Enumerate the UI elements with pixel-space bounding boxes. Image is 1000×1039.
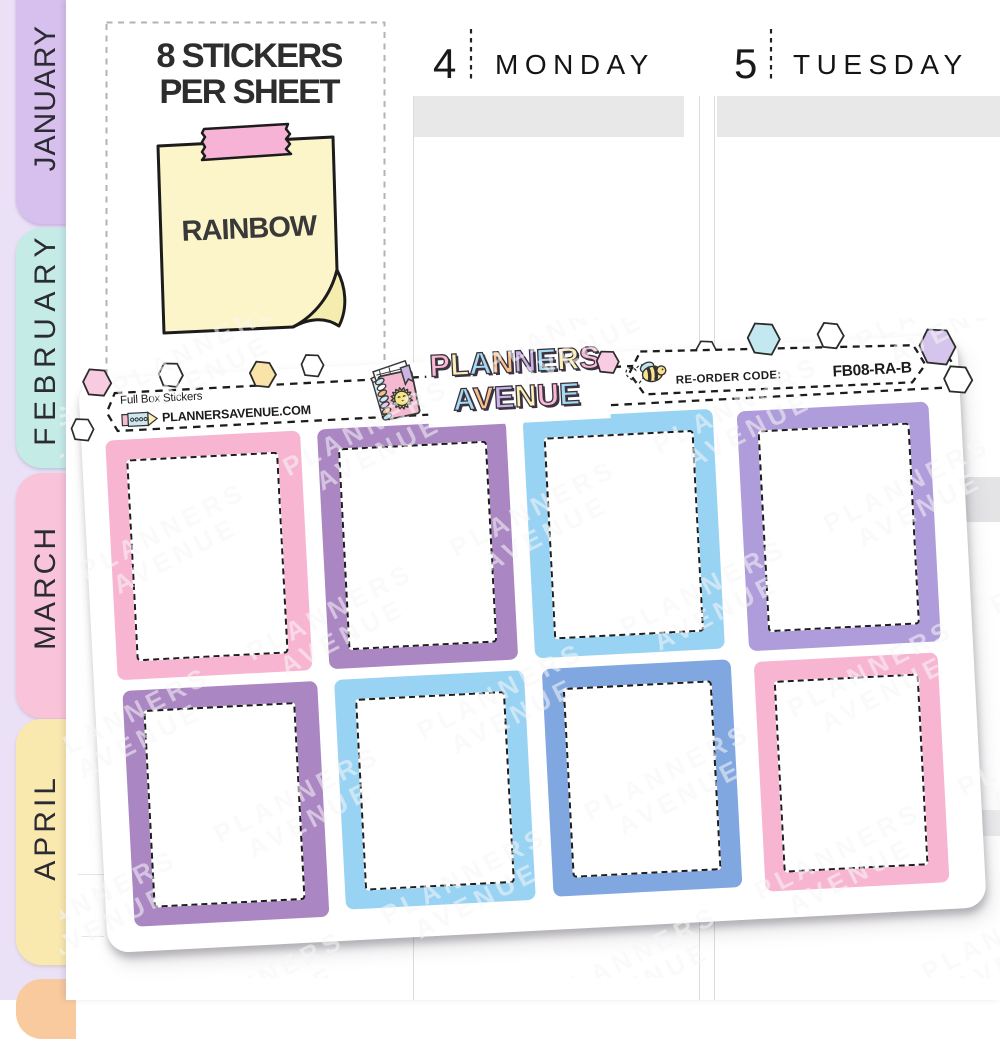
svg-text:RAINBOW: RAINBOW [181,210,319,248]
